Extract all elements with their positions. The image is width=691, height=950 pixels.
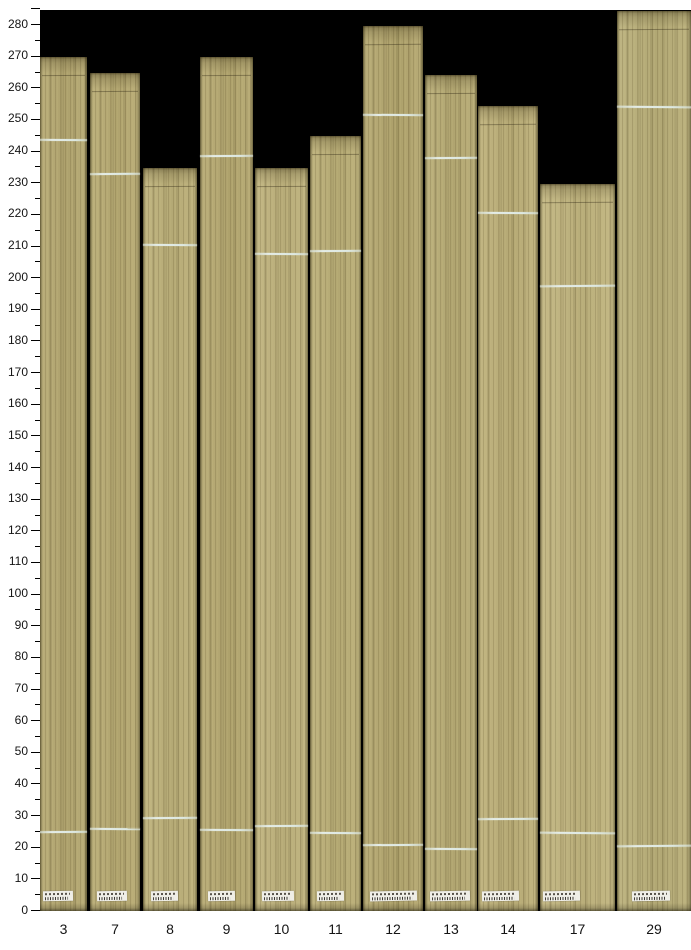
- upper-white-mark: [540, 285, 615, 287]
- y-tick: [35, 420, 40, 421]
- veneer-board: [540, 184, 615, 911]
- barcode-sticker: [430, 891, 470, 902]
- veneer-board: [363, 26, 423, 911]
- y-tick: [35, 72, 40, 73]
- y-tick: [31, 8, 40, 9]
- x-category-label: 17: [570, 921, 586, 937]
- y-tick: [31, 783, 40, 784]
- y-tick: [31, 435, 40, 436]
- y-tick-label: 260: [0, 81, 28, 94]
- y-tick-label: 280: [0, 18, 28, 31]
- x-category-label: 7: [111, 921, 119, 937]
- y-tick-label: 240: [0, 144, 28, 157]
- pencil-line: [257, 186, 306, 187]
- barcode-sticker: [543, 891, 580, 902]
- y-tick: [31, 625, 40, 626]
- barcode-sticker: [97, 891, 127, 902]
- y-tick-label: 30: [0, 809, 28, 822]
- y-tick-label: 210: [0, 239, 28, 252]
- y-tick: [31, 847, 40, 848]
- pencil-line: [365, 43, 421, 44]
- x-category-label: 14: [500, 921, 516, 937]
- y-tick: [35, 673, 40, 674]
- lower-white-mark: [540, 832, 615, 834]
- x-category-label: 8: [166, 921, 174, 937]
- y-tick: [35, 356, 40, 357]
- y-tick-label: 40: [0, 777, 28, 790]
- barcode-sticker: [262, 891, 294, 902]
- pencil-line: [427, 92, 475, 93]
- x-category-label: 13: [443, 921, 459, 937]
- y-tick: [31, 467, 40, 468]
- y-tick: [35, 325, 40, 326]
- pencil-line: [202, 75, 251, 76]
- y-tick-label: 220: [0, 207, 28, 220]
- y-tick-label: 0: [0, 904, 28, 917]
- y-tick-label: 80: [0, 650, 28, 663]
- y-tick: [35, 198, 40, 199]
- barcode-sticker: [482, 891, 519, 902]
- veneer-board: [425, 75, 477, 911]
- y-tick-label: 100: [0, 587, 28, 600]
- veneer-board: [90, 73, 140, 911]
- barcode-sticker: [317, 891, 344, 902]
- y-tick: [31, 815, 40, 816]
- barcode-sticker: [632, 891, 670, 902]
- y-tick: [35, 261, 40, 262]
- y-tick: [35, 704, 40, 705]
- y-tick: [31, 594, 40, 595]
- lower-white-mark: [478, 818, 538, 820]
- y-tick: [35, 293, 40, 294]
- y-tick: [31, 151, 40, 152]
- lower-white-mark: [255, 824, 308, 826]
- barcode-sticker: [43, 891, 73, 902]
- veneer-length-chart: 0102030405060708090100110120130140150160…: [0, 0, 691, 950]
- veneer-board: [200, 57, 253, 911]
- lower-white-mark: [425, 848, 477, 850]
- pencil-line: [480, 124, 536, 125]
- lower-white-mark: [363, 843, 423, 845]
- veneer-board: [143, 168, 197, 911]
- y-tick: [31, 87, 40, 88]
- y-tick: [35, 578, 40, 579]
- y-tick: [31, 878, 40, 879]
- y-tick-label: 90: [0, 619, 28, 632]
- y-tick: [35, 736, 40, 737]
- y-tick: [31, 309, 40, 310]
- y-tick: [35, 515, 40, 516]
- y-tick: [35, 40, 40, 41]
- y-tick: [35, 103, 40, 104]
- veneer-board: [478, 106, 538, 911]
- y-tick: [31, 246, 40, 247]
- y-tick: [31, 56, 40, 57]
- y-tick: [35, 230, 40, 231]
- y-tick-label: 60: [0, 714, 28, 727]
- y-tick: [35, 609, 40, 610]
- y-tick: [31, 530, 40, 531]
- y-tick-label: 230: [0, 176, 28, 189]
- y-tick-label: 70: [0, 682, 28, 695]
- y-tick: [31, 562, 40, 563]
- y-tick: [35, 166, 40, 167]
- lower-white-mark: [310, 832, 361, 834]
- y-tick-label: 130: [0, 492, 28, 505]
- upper-white-mark: [310, 250, 361, 252]
- x-category-label: 12: [385, 921, 401, 937]
- barcode-sticker: [370, 891, 417, 902]
- pencil-line: [542, 202, 613, 203]
- y-tick-label: 170: [0, 366, 28, 379]
- pencil-line: [92, 91, 138, 92]
- x-category-label: 29: [646, 921, 662, 937]
- y-tick-label: 250: [0, 112, 28, 125]
- y-tick: [31, 752, 40, 753]
- y-tick: [35, 135, 40, 136]
- y-tick: [31, 657, 40, 658]
- pencil-line: [145, 186, 195, 187]
- lower-white-mark: [617, 845, 691, 847]
- y-tick-label: 110: [0, 555, 28, 568]
- y-tick-label: 140: [0, 461, 28, 474]
- upper-white-mark: [40, 139, 87, 141]
- lower-white-mark: [143, 817, 197, 819]
- y-tick-label: 190: [0, 302, 28, 315]
- y-tick-label: 180: [0, 334, 28, 347]
- veneer-board: [40, 57, 87, 911]
- y-tick: [31, 277, 40, 278]
- lower-white-mark: [40, 831, 87, 833]
- y-tick-label: 200: [0, 271, 28, 284]
- upper-white-mark: [200, 155, 253, 157]
- y-tick: [31, 910, 40, 911]
- y-tick: [35, 388, 40, 389]
- y-tick: [35, 863, 40, 864]
- y-tick: [31, 689, 40, 690]
- y-tick: [31, 720, 40, 721]
- y-tick: [35, 799, 40, 800]
- pencil-line: [619, 29, 689, 30]
- y-tick: [31, 499, 40, 500]
- upper-white-mark: [255, 253, 308, 255]
- veneer-board: [310, 136, 361, 911]
- y-tick: [35, 831, 40, 832]
- y-tick-label: 50: [0, 745, 28, 758]
- barcode-sticker: [208, 891, 235, 902]
- y-tick-label: 10: [0, 872, 28, 885]
- veneer-board: [617, 11, 691, 911]
- x-category-label: 9: [223, 921, 231, 937]
- y-tick-label: 120: [0, 524, 28, 537]
- y-tick-label: 20: [0, 840, 28, 853]
- y-tick-label: 270: [0, 49, 28, 62]
- y-tick: [31, 404, 40, 405]
- y-tick-label: 160: [0, 397, 28, 410]
- y-tick: [31, 24, 40, 25]
- upper-white-mark: [143, 244, 197, 246]
- y-tick: [35, 483, 40, 484]
- upper-white-mark: [478, 212, 538, 214]
- upper-white-mark: [90, 173, 140, 175]
- y-tick: [35, 768, 40, 769]
- veneer-board: [255, 168, 308, 911]
- barcode-sticker: [151, 891, 178, 902]
- y-tick: [35, 451, 40, 452]
- lower-white-mark: [90, 828, 140, 830]
- y-tick: [31, 182, 40, 183]
- upper-white-mark: [363, 114, 423, 116]
- y-tick-label: 150: [0, 429, 28, 442]
- y-tick: [31, 119, 40, 120]
- y-tick: [31, 340, 40, 341]
- x-category-label: 3: [60, 921, 68, 937]
- lower-white-mark: [200, 829, 253, 831]
- x-category-label: 10: [274, 921, 290, 937]
- y-tick: [35, 641, 40, 642]
- x-category-label: 11: [328, 921, 343, 937]
- pencil-line: [42, 75, 85, 76]
- y-tick: [35, 894, 40, 895]
- upper-white-mark: [617, 106, 691, 108]
- pencil-line: [312, 154, 359, 155]
- y-tick: [35, 546, 40, 547]
- upper-white-mark: [425, 157, 477, 159]
- y-tick: [31, 372, 40, 373]
- y-tick: [31, 214, 40, 215]
